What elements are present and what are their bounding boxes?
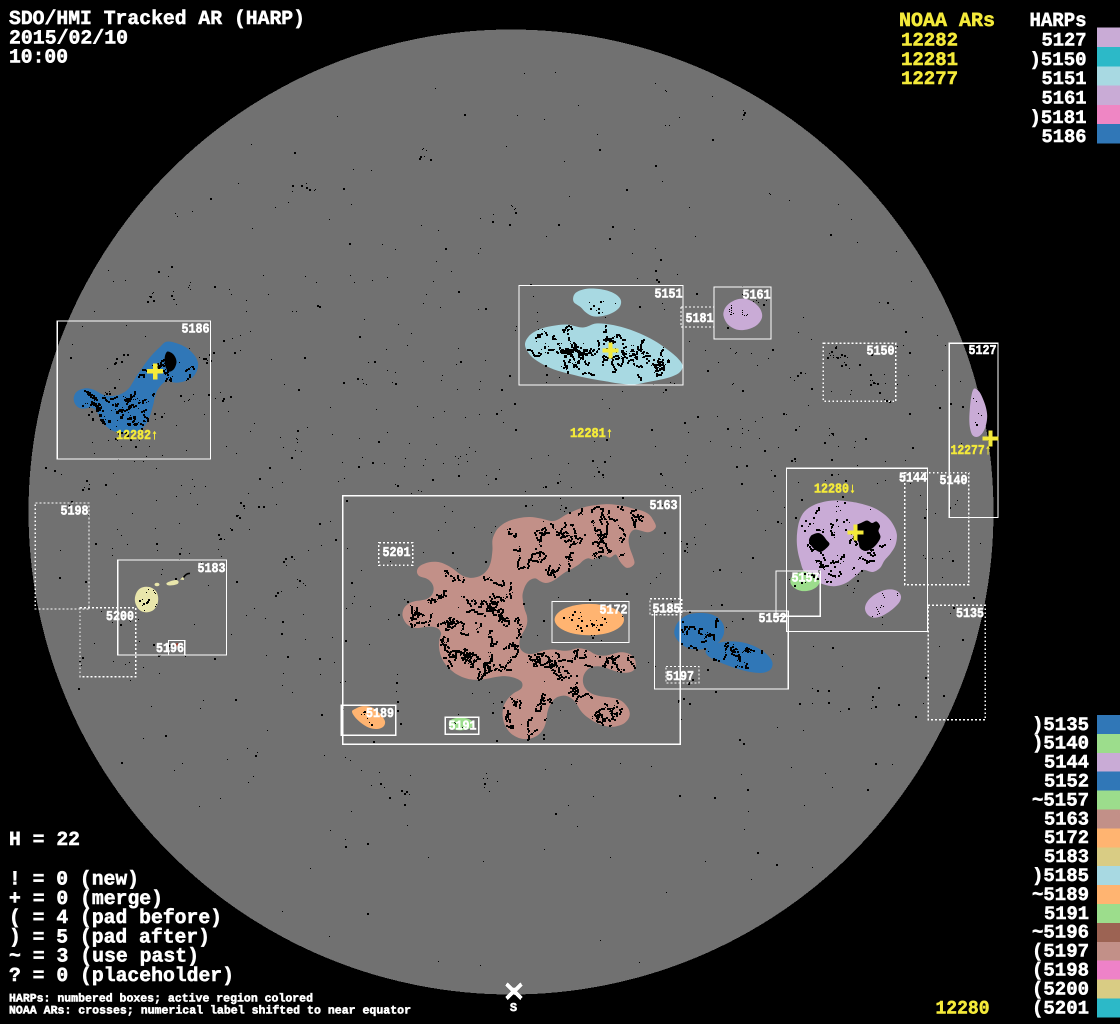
svg-text:5152: 5152 (759, 612, 787, 627)
svg-text:5161: 5161 (743, 289, 771, 304)
svg-text:NOAA ARs: crosses; numerical l: NOAA ARs: crosses; numerical label shift… (9, 1005, 411, 1018)
svg-text:12277: 12277 (901, 68, 958, 90)
svg-text:5151: 5151 (655, 288, 683, 303)
svg-text:10:00: 10:00 (9, 47, 68, 70)
svg-text:5201: 5201 (383, 546, 411, 561)
svg-text:S: S (510, 1001, 517, 1015)
svg-text:5186: 5186 (1042, 126, 1087, 148)
svg-text:5163: 5163 (650, 499, 678, 514)
svg-text:5197: 5197 (666, 670, 694, 685)
svg-text:5189: 5189 (366, 707, 394, 722)
svg-text:5172: 5172 (600, 604, 628, 619)
svg-text:5196: 5196 (156, 642, 184, 657)
svg-text:5127: 5127 (969, 344, 997, 359)
svg-text:5185: 5185 (653, 603, 681, 618)
svg-text:5140: 5140 (940, 474, 968, 489)
svg-text:12281↑: 12281↑ (570, 427, 613, 442)
svg-text:12277↑: 12277↑ (951, 444, 992, 459)
svg-text:5150: 5150 (867, 345, 895, 360)
svg-text:5191: 5191 (449, 720, 477, 735)
svg-text:5144: 5144 (899, 472, 927, 487)
svg-text:12282↑: 12282↑ (116, 429, 158, 444)
svg-text:(5201: (5201 (1032, 997, 1089, 1019)
svg-text:5157: 5157 (792, 572, 820, 587)
svg-text:? = 0 (placeholder): ? = 0 (placeholder) (9, 965, 234, 988)
svg-text:12280↓: 12280↓ (814, 483, 856, 498)
svg-text:5198: 5198 (61, 505, 89, 520)
svg-text:5183: 5183 (198, 562, 226, 577)
svg-text:5186: 5186 (182, 323, 210, 338)
svg-text:5135: 5135 (956, 607, 984, 622)
svg-text:5200: 5200 (106, 610, 134, 625)
svg-text:12280: 12280 (936, 998, 990, 1020)
svg-text:H = 22: H = 22 (9, 829, 80, 852)
svg-text:5181: 5181 (686, 312, 714, 327)
